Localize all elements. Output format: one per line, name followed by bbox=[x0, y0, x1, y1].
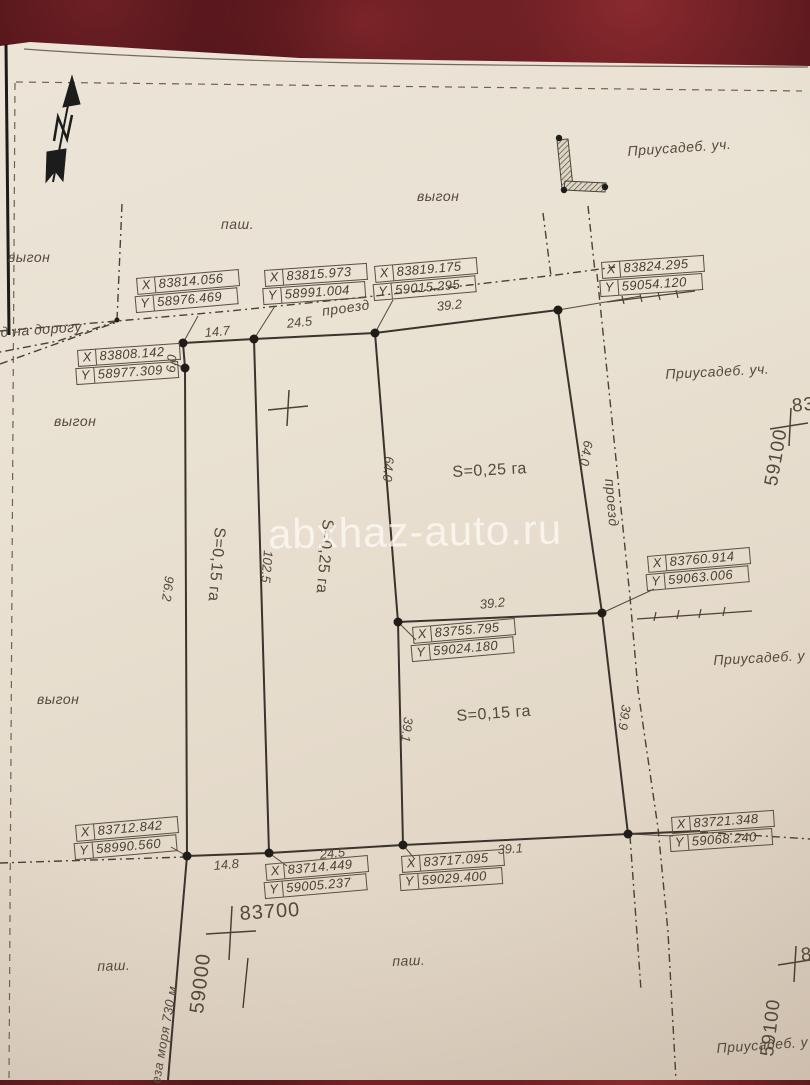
coord-axis-label: X bbox=[601, 261, 621, 279]
coord-axis-label: X bbox=[671, 816, 691, 834]
coord-axis-label: X bbox=[75, 823, 95, 842]
coord-axis-label: X bbox=[77, 349, 97, 367]
coordinate-box-top-right: X83824.295Y59054.120 bbox=[601, 255, 706, 298]
coordinate-box-top-left-upper: X83814.056Y58976.469 bbox=[136, 269, 242, 314]
coord-axis-label: X bbox=[412, 625, 432, 644]
coord-axis-label: X bbox=[647, 554, 667, 573]
coord-axis-label: X bbox=[374, 264, 394, 283]
coord-axis-label: Y bbox=[399, 873, 419, 891]
coord-axis-label: X bbox=[265, 862, 285, 881]
coord-axis-label: X bbox=[401, 855, 421, 873]
coordinate-box-bottom-left: X83712.842Y58990.560 bbox=[75, 816, 181, 861]
coordinate-box-bottom-right: X83721.348Y59068.240 bbox=[671, 810, 776, 853]
coord-axis-label: Y bbox=[75, 367, 95, 385]
photo-of-survey-plan: { "watermark": "abxhaz-auto.ru", "coordi… bbox=[0, 0, 810, 1080]
coord-axis-label: Y bbox=[74, 842, 94, 861]
coord-axis-label: Y bbox=[411, 644, 431, 663]
coord-axis-label: Y bbox=[646, 573, 666, 592]
watermark: abxhaz-auto.ru bbox=[268, 505, 563, 558]
coordinate-box-left-upper: X83808.142Y58977.309 bbox=[77, 343, 182, 386]
coordinate-box-center: X83755.795Y59024.180 bbox=[412, 618, 518, 663]
coord-axis-label: Y bbox=[264, 881, 284, 900]
coord-axis-label: Y bbox=[135, 295, 155, 314]
coordinate-box-top-mid-right: X83819.175Y59015.295 bbox=[374, 257, 480, 302]
coord-axis-label: Y bbox=[599, 279, 619, 297]
coordinate-box-bottom-mid-right: X83717.095Y59029.400 bbox=[401, 849, 506, 892]
coordinate-box-top-mid-left: X83815.973Y58991.004 bbox=[264, 263, 369, 306]
coord-axis-label: Y bbox=[669, 834, 689, 852]
coord-axis-label: X bbox=[264, 269, 284, 287]
coord-axis-label: Y bbox=[373, 283, 393, 302]
coordinate-box-right-mid: X83760.914Y59063.006 bbox=[647, 547, 753, 592]
coord-axis-label: X bbox=[136, 276, 156, 295]
coord-axis-label: Y bbox=[262, 287, 282, 305]
coordinate-box-bottom-mid-left: X83714.449Y59005.237 bbox=[265, 855, 371, 900]
